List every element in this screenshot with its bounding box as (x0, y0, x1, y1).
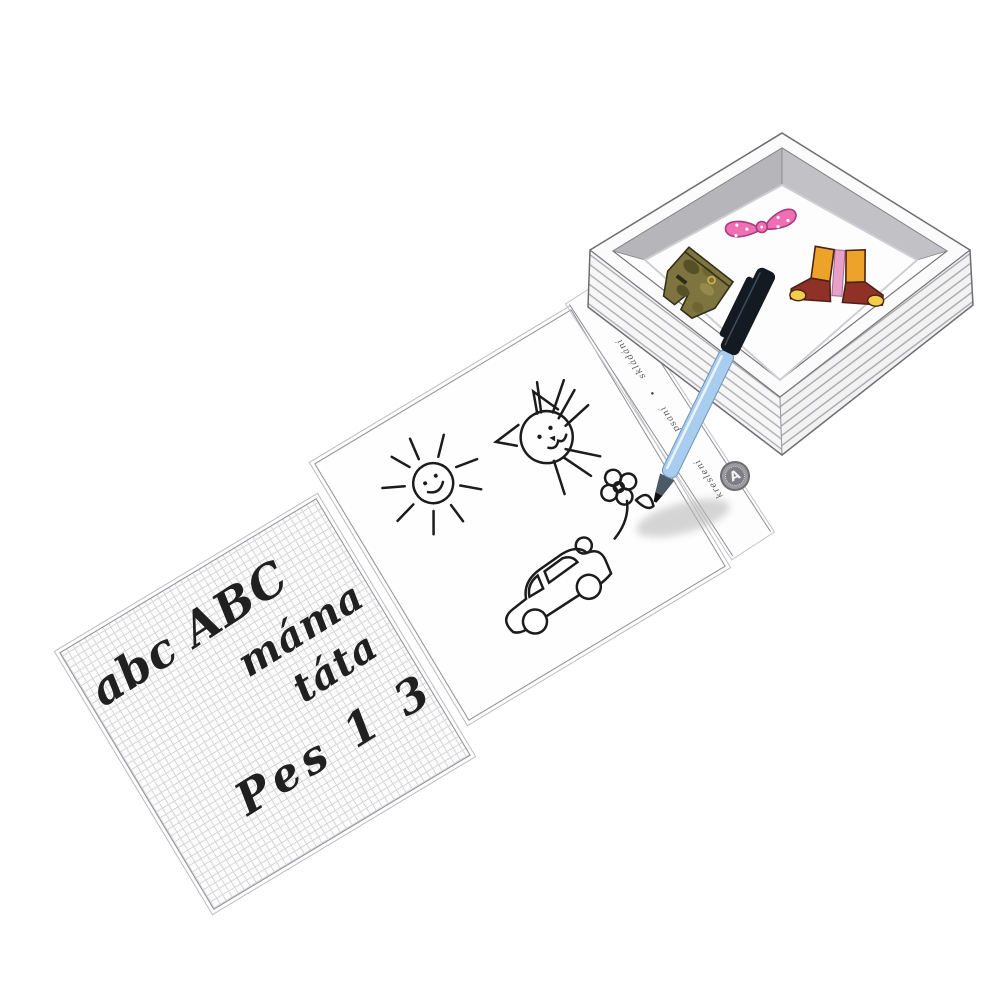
blue-marker-pen (600, 250, 820, 550)
product-photo-scene: abc ABC máma táta Pes 1 3 8 (0, 0, 1000, 1000)
pen-shadow (633, 491, 733, 545)
sun-doodle (365, 415, 501, 551)
